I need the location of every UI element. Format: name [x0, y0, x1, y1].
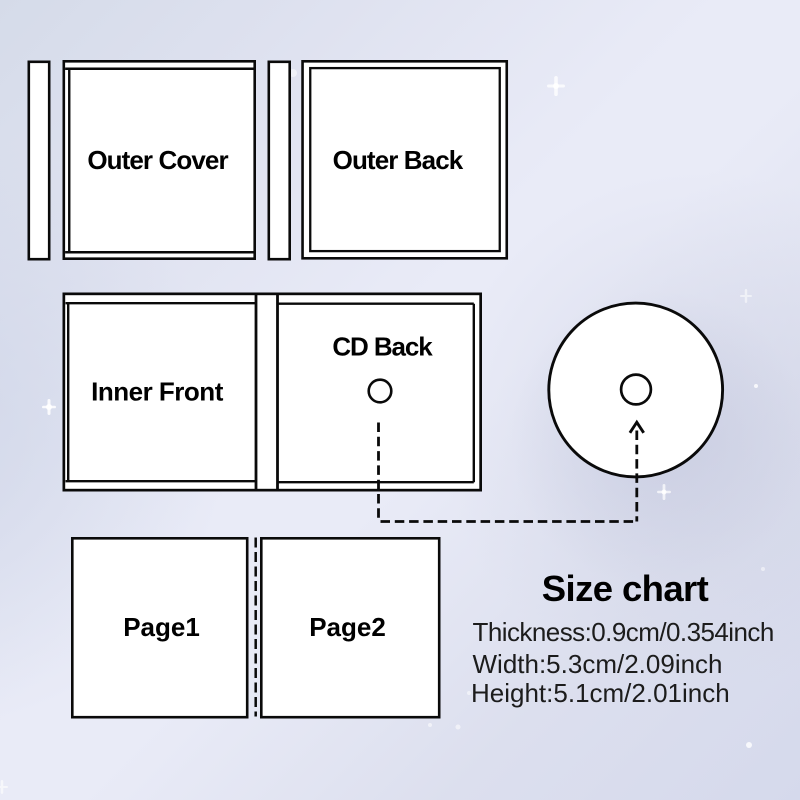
- svg-text:Height:5.1cm/2.01inch: Height:5.1cm/2.01inch: [471, 678, 730, 708]
- svg-text:Outer Cover: Outer Cover: [87, 145, 228, 175]
- svg-text:Page2: Page2: [309, 612, 386, 642]
- svg-text:Inner Front: Inner Front: [91, 377, 224, 407]
- svg-text:Outer Back: Outer Back: [333, 145, 464, 175]
- svg-text:Width:5.3cm/2.09inch: Width:5.3cm/2.09inch: [473, 649, 723, 679]
- svg-text:Page1: Page1: [123, 612, 200, 642]
- svg-text:CD Back: CD Back: [332, 332, 433, 362]
- svg-text:Thickness:0.9cm/0.354inch: Thickness:0.9cm/0.354inch: [473, 617, 774, 647]
- svg-text:Size chart: Size chart: [542, 568, 709, 609]
